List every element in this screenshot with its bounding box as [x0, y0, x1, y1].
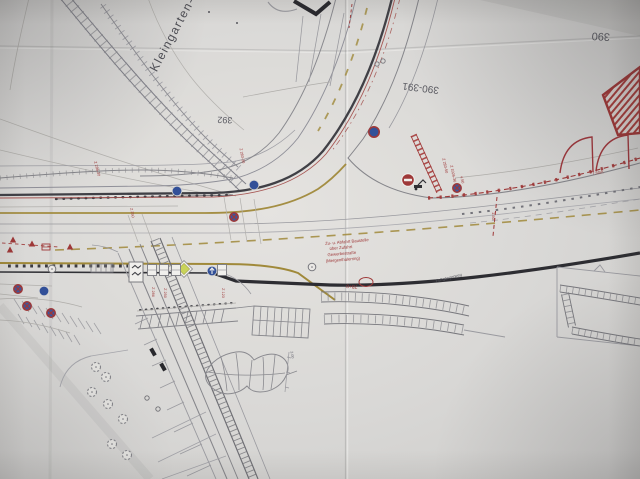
site-plan-drawing: Kleingarten-392390-391390Zu- u. Abfahrt … — [0, 0, 640, 479]
blue-red-sign — [369, 127, 379, 137]
station-label: 78+0 — [346, 283, 358, 290]
blue-sign — [172, 186, 182, 196]
box-symbol — [148, 265, 157, 276]
sign-code-5: Z 123 — [221, 288, 225, 298]
no-stopping-sign — [14, 285, 22, 293]
tree-symbol — [104, 400, 113, 409]
gray-ring-sign — [308, 263, 316, 271]
no-stopping-sign — [23, 302, 31, 310]
stop-sign — [402, 174, 415, 187]
tree-symbol — [108, 440, 117, 449]
tree-symbol — [119, 415, 128, 424]
no-stopping-sign — [230, 213, 238, 221]
tree-symbol — [102, 373, 111, 382]
sign-code-4: Z 250 — [163, 288, 167, 298]
dim-150: 1.50 — [491, 212, 496, 221]
blue-arrow-sign — [207, 266, 217, 276]
blue-sign — [249, 180, 259, 190]
tree-symbol — [123, 451, 132, 460]
box-symbol — [160, 265, 169, 276]
chevron-box-symbol — [129, 262, 143, 282]
no-stopping-sign — [453, 184, 461, 192]
box-symbol — [172, 265, 181, 276]
grid-390: 390 — [591, 30, 610, 43]
paper-sheet — [0, 0, 640, 479]
plan-photo: Kleingarten-392390-391390Zu- u. Abfahrt … — [0, 0, 640, 479]
gray-ring-sign — [48, 265, 56, 273]
tree-symbol — [88, 388, 97, 397]
grid-392: 392 — [217, 115, 232, 126]
sign-code-3: Z 286 — [151, 287, 155, 297]
tree-symbol — [92, 363, 101, 372]
blue-sign — [39, 286, 49, 296]
box-symbol — [218, 265, 227, 276]
no-stopping-sign — [47, 309, 55, 317]
